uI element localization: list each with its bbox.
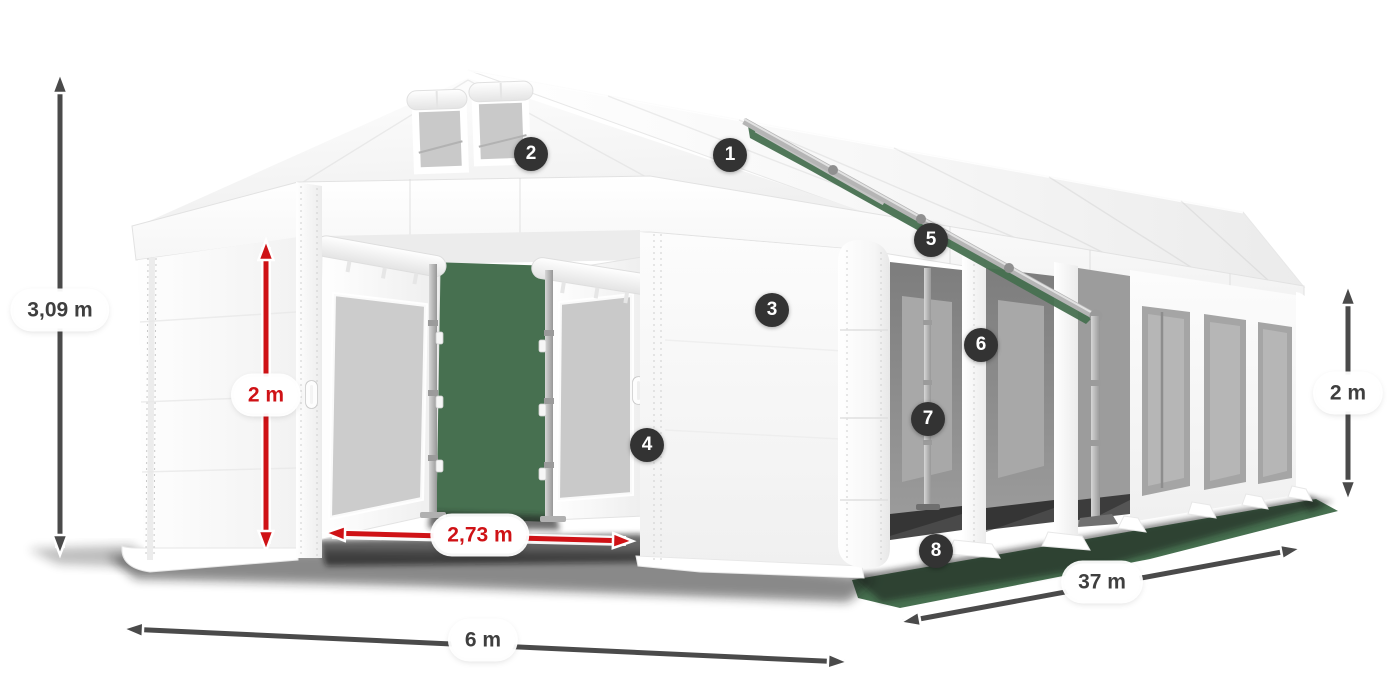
- sidewall-bay-2: [986, 268, 1054, 532]
- section-junction: [1078, 268, 1130, 526]
- entrance-width-label: 2,73 m: [433, 517, 526, 554]
- feature-badge-3[interactable]: 3: [755, 293, 789, 327]
- feature-badge-5[interactable]: 5: [914, 223, 948, 257]
- feature-badge-7[interactable]: 7: [911, 402, 945, 436]
- front-wall-panel: [636, 232, 864, 578]
- total-height-label: 3,09 m: [13, 292, 106, 329]
- tent-illustration: [0, 0, 1400, 700]
- corner-column: [838, 240, 890, 568]
- feature-badge-2[interactable]: 2: [514, 137, 548, 171]
- entrance-door-left: [318, 246, 440, 540]
- feature-badge-6[interactable]: 6: [964, 328, 998, 362]
- feature-badge-1[interactable]: 1: [713, 138, 747, 172]
- sidewall-rear-section: [1118, 270, 1312, 532]
- tent-dimensions-diagram: 3,09 m 2 m 2,73 m 6 m 37 m 2 m 1 2 3 4 5…: [0, 0, 1400, 700]
- feature-badge-8[interactable]: 8: [919, 534, 953, 568]
- entrance-height-label: 2 m: [234, 377, 298, 414]
- entrance-jamb-left: [296, 182, 322, 558]
- tent-width-label: 6 m: [451, 622, 515, 659]
- feature-badge-4[interactable]: 4: [630, 428, 664, 462]
- gable-vent-left: [407, 89, 470, 171]
- side-height-label: 2 m: [1316, 375, 1380, 412]
- tent-length-label: 37 m: [1064, 564, 1140, 601]
- sidewall-bay-1: [890, 262, 962, 540]
